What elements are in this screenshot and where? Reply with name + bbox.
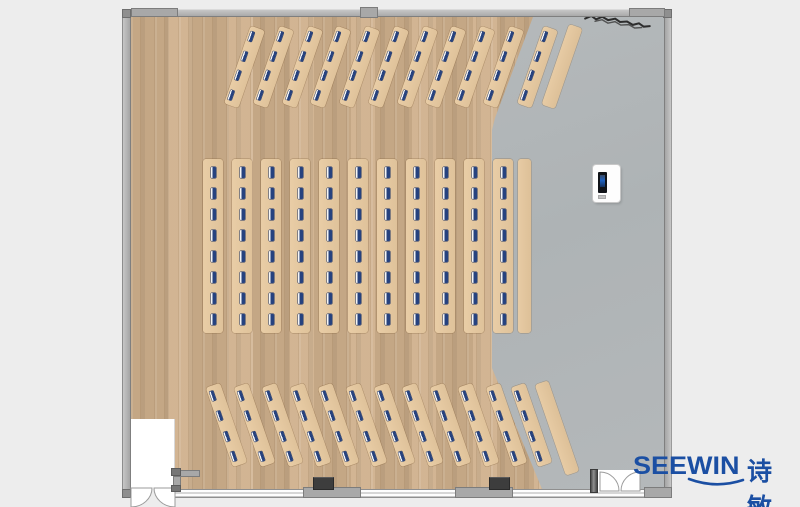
wall-top xyxy=(122,9,672,17)
seat-marker xyxy=(250,431,257,442)
seat-marker xyxy=(425,451,432,462)
seat-marker xyxy=(355,411,362,422)
side-table xyxy=(518,159,531,333)
seat-marker xyxy=(418,431,425,442)
podium xyxy=(593,165,620,202)
bottom-desk-rows xyxy=(0,0,800,507)
seat-marker xyxy=(432,391,439,402)
wall-joint-1 xyxy=(171,468,181,476)
seat-marker xyxy=(369,451,376,462)
wall-segment-top-center xyxy=(360,7,378,18)
seat-marker xyxy=(271,411,278,422)
seat-marker xyxy=(222,431,229,442)
seat-marker xyxy=(509,451,516,462)
entrance-vestibule xyxy=(131,419,175,489)
wall-corner-top-left xyxy=(122,9,131,18)
seat-marker xyxy=(243,411,250,422)
seat-marker xyxy=(446,431,453,442)
seat-marker xyxy=(460,391,467,402)
seat-marker xyxy=(527,431,534,442)
seat-marker xyxy=(513,391,520,402)
seat-marker xyxy=(236,391,243,402)
seat-marker xyxy=(474,431,481,442)
seat-marker xyxy=(404,391,411,402)
wall-joint-2 xyxy=(171,485,181,492)
seat-marker xyxy=(348,391,355,402)
seat-marker xyxy=(264,391,271,402)
seat-marker xyxy=(341,451,348,462)
door-bottom-left xyxy=(129,487,177,507)
seat-marker xyxy=(383,411,390,422)
seat-marker xyxy=(285,451,292,462)
pillar-right xyxy=(489,477,510,490)
floorplan-canvas: SEEWIN 诗敏 xyxy=(0,0,800,507)
seat-marker xyxy=(481,451,488,462)
wall-right xyxy=(664,9,672,498)
wall-segment-top-right xyxy=(629,8,665,17)
pillar-left xyxy=(313,477,334,490)
seat-marker xyxy=(453,451,460,462)
seat-marker xyxy=(215,411,222,422)
seat-marker xyxy=(229,451,236,462)
podium-screen xyxy=(598,172,607,193)
seat-marker xyxy=(534,451,541,462)
seat-marker xyxy=(495,411,502,422)
seat-marker xyxy=(320,391,327,402)
door-post xyxy=(590,469,598,493)
seat-marker xyxy=(313,451,320,462)
brand-logo: SEEWIN 诗敏 xyxy=(633,450,798,490)
podium-tray xyxy=(598,195,606,199)
wall-segment-top-left xyxy=(131,8,178,17)
seat-marker xyxy=(292,391,299,402)
seat-marker xyxy=(502,431,509,442)
seat-marker xyxy=(334,431,341,442)
seat-marker xyxy=(488,391,495,402)
wall-left xyxy=(122,9,131,498)
seat-marker xyxy=(299,411,306,422)
seat-marker xyxy=(362,431,369,442)
seat-marker xyxy=(208,391,215,402)
seat-marker xyxy=(390,431,397,442)
seat-marker xyxy=(397,451,404,462)
seat-marker xyxy=(278,431,285,442)
brand-logo-text-zh: 诗敏 xyxy=(747,452,798,507)
seat-marker xyxy=(306,431,313,442)
seat-marker xyxy=(411,411,418,422)
seat-marker xyxy=(376,391,383,402)
seat-marker xyxy=(257,451,264,462)
brand-logo-swoosh-icon xyxy=(687,477,745,487)
seat-marker xyxy=(439,411,446,422)
seat-marker xyxy=(467,411,474,422)
seat-marker xyxy=(327,411,334,422)
seat-marker xyxy=(520,411,527,422)
